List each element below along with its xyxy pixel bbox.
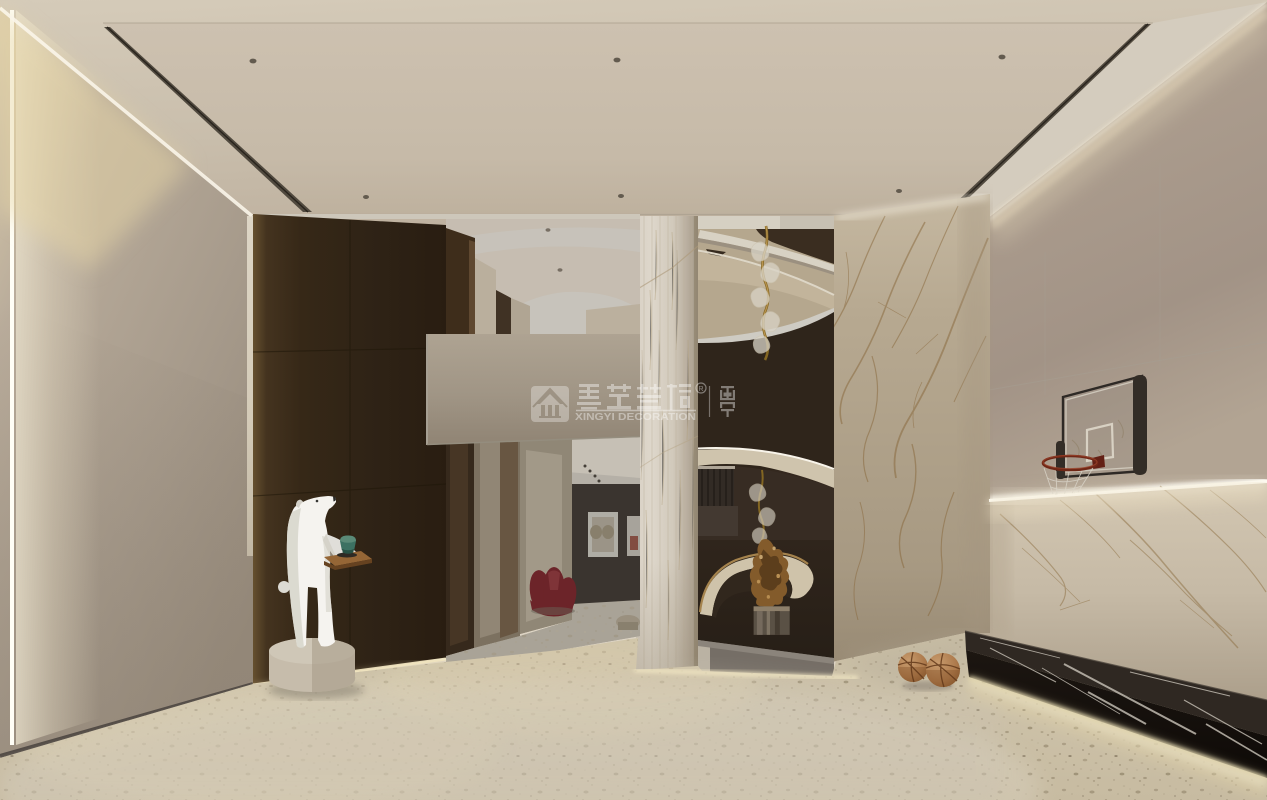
svg-text:R: R [698,386,703,393]
svg-text:XINGYI DECORATION: XINGYI DECORATION [575,411,696,423]
